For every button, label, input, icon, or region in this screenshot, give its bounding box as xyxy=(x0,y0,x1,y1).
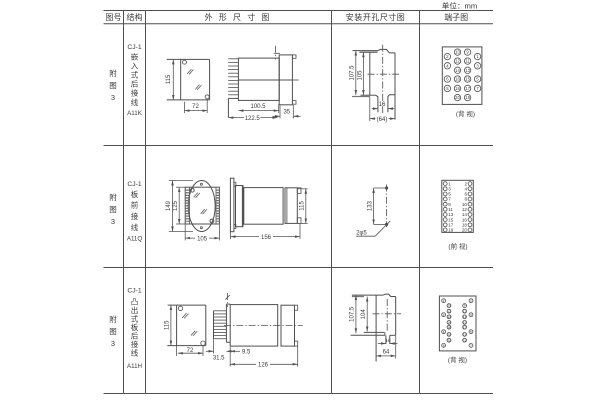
svg-text:11: 11 xyxy=(463,309,466,313)
svg-text:107.5: 107.5 xyxy=(350,306,356,322)
svg-text:入: 入 xyxy=(131,61,139,70)
svg-text:19: 19 xyxy=(465,95,470,100)
svg-text:16: 16 xyxy=(379,102,386,108)
svg-text:4: 4 xyxy=(446,63,449,68)
svg-text:3: 3 xyxy=(476,63,479,68)
svg-text:9.5: 9.5 xyxy=(242,350,251,356)
svg-text:16: 16 xyxy=(385,338,391,343)
svg-text:10: 10 xyxy=(447,304,451,308)
svg-text:图: 图 xyxy=(109,205,117,214)
svg-text:14: 14 xyxy=(455,68,460,73)
svg-text:20: 20 xyxy=(447,333,451,337)
svg-text:6: 6 xyxy=(446,77,449,82)
svg-text:19: 19 xyxy=(448,228,454,233)
svg-text:安装开孔尺寸图: 安装开孔尺寸图 xyxy=(346,12,406,22)
svg-text:线: 线 xyxy=(131,222,139,232)
svg-text:接: 接 xyxy=(131,88,139,98)
svg-text:5: 5 xyxy=(476,77,479,82)
svg-text:133: 133 xyxy=(367,201,373,212)
svg-text:(背 视): (背 视) xyxy=(456,109,475,118)
svg-text:(背 视): (背 视) xyxy=(448,355,467,364)
svg-text:72: 72 xyxy=(192,104,199,110)
svg-text:式: 式 xyxy=(131,69,139,79)
svg-text:结构: 结构 xyxy=(127,12,143,22)
svg-text:板: 板 xyxy=(131,189,139,199)
svg-text:外 形 尺 寸 图: 外 形 尺 寸 图 xyxy=(205,12,272,22)
svg-text:1: 1 xyxy=(476,54,479,59)
svg-text:105: 105 xyxy=(197,236,208,242)
svg-text:115: 115 xyxy=(299,201,305,211)
svg-text:线: 线 xyxy=(131,348,139,358)
svg-text:15: 15 xyxy=(465,77,470,82)
svg-text:后: 后 xyxy=(131,79,139,89)
svg-text:15: 15 xyxy=(463,321,467,325)
svg-text:A11K: A11K xyxy=(127,110,143,117)
svg-text:图号: 图号 xyxy=(106,13,122,22)
svg-text:A11H: A11H xyxy=(127,363,142,370)
svg-text:14: 14 xyxy=(447,315,451,319)
svg-text:2: 2 xyxy=(446,54,449,59)
svg-text:18: 18 xyxy=(447,325,451,329)
svg-text:122.5: 122.5 xyxy=(245,116,261,122)
svg-text:(64): (64) xyxy=(377,117,388,123)
svg-text:附: 附 xyxy=(109,193,117,202)
svg-text:16: 16 xyxy=(447,321,451,325)
svg-text:64: 64 xyxy=(383,350,390,356)
svg-text:2φ5: 2φ5 xyxy=(356,230,367,236)
svg-text:22: 22 xyxy=(447,338,451,342)
svg-text:20: 20 xyxy=(462,228,468,233)
svg-text:出: 出 xyxy=(131,305,139,315)
svg-text:72: 72 xyxy=(187,348,194,354)
svg-text:(前 视): (前 视) xyxy=(448,242,467,251)
svg-text:156: 156 xyxy=(261,235,272,241)
svg-text:21: 21 xyxy=(463,338,467,342)
svg-text:线: 线 xyxy=(131,97,139,107)
svg-text:板: 板 xyxy=(131,322,139,332)
svg-text:105: 105 xyxy=(357,70,363,81)
svg-text:107.5: 107.5 xyxy=(349,65,355,81)
svg-text:附: 附 xyxy=(109,69,117,78)
svg-text:126: 126 xyxy=(258,363,269,369)
svg-text:3: 3 xyxy=(111,217,115,226)
svg-text:附: 附 xyxy=(109,315,117,324)
svg-text:CJ-1: CJ-1 xyxy=(127,181,142,188)
svg-text:11: 11 xyxy=(465,59,470,64)
svg-text:图: 图 xyxy=(109,81,117,90)
svg-text:115: 115 xyxy=(164,320,170,330)
svg-text:7: 7 xyxy=(476,86,479,91)
svg-text:12: 12 xyxy=(455,59,460,64)
svg-text:10: 10 xyxy=(455,50,460,55)
svg-text:19: 19 xyxy=(463,333,467,337)
svg-text:3: 3 xyxy=(111,339,115,348)
svg-text:13: 13 xyxy=(463,315,467,319)
svg-text:图: 图 xyxy=(109,327,117,336)
svg-text:100.5: 100.5 xyxy=(250,104,266,110)
svg-text:端子图: 端子图 xyxy=(444,12,468,22)
svg-text:17: 17 xyxy=(463,325,467,329)
svg-text:115: 115 xyxy=(166,74,172,84)
svg-text:17: 17 xyxy=(465,86,470,91)
svg-text:16: 16 xyxy=(455,77,460,82)
svg-text:35: 35 xyxy=(283,109,290,115)
svg-text:104: 104 xyxy=(361,309,367,320)
svg-text:9: 9 xyxy=(466,50,469,55)
svg-text:8: 8 xyxy=(446,86,449,91)
svg-text:A11Q: A11Q xyxy=(127,236,143,243)
svg-text:接: 接 xyxy=(131,211,139,221)
svg-text:149: 149 xyxy=(166,200,172,211)
svg-text:18: 18 xyxy=(455,86,460,91)
svg-text:13: 13 xyxy=(465,68,470,73)
svg-text:嵌: 嵌 xyxy=(131,52,139,61)
svg-text:3: 3 xyxy=(111,93,115,102)
svg-text:前: 前 xyxy=(131,200,139,210)
svg-text:单位：mm: 单位：mm xyxy=(442,1,477,11)
svg-text:CJ-1: CJ-1 xyxy=(127,287,142,294)
svg-text:31.5: 31.5 xyxy=(213,355,225,361)
svg-text:12: 12 xyxy=(447,309,451,313)
svg-text:接: 接 xyxy=(131,339,139,349)
svg-text:CJ-1: CJ-1 xyxy=(127,44,142,51)
svg-text:20: 20 xyxy=(455,95,460,100)
svg-text:125: 125 xyxy=(173,200,179,211)
